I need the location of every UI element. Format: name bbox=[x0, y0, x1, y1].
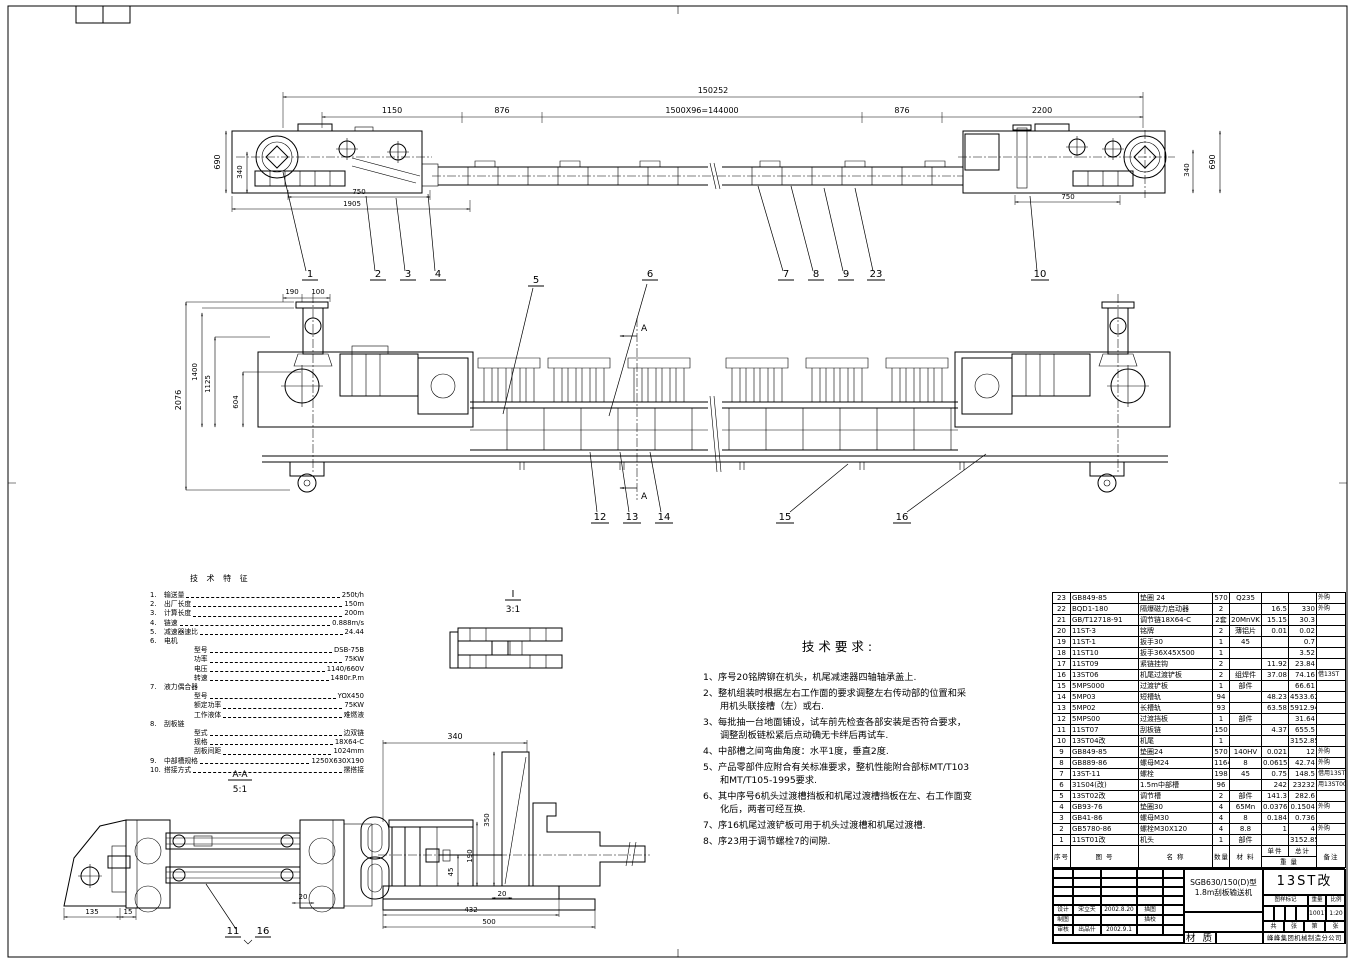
balloon: 16 bbox=[257, 926, 270, 937]
table-cell: 机尾 bbox=[1139, 736, 1213, 747]
section-aa-large: 340 350 190 45 20 432 bbox=[361, 732, 650, 929]
table-cell: 42.74 bbox=[1289, 758, 1317, 769]
empty-cell bbox=[1184, 912, 1263, 932]
table-cell: 66.61 bbox=[1289, 681, 1317, 692]
table-cell: 外购 bbox=[1317, 824, 1346, 835]
table-cell: 部件 bbox=[1230, 681, 1262, 692]
spec-line: 刮板间距1024mm bbox=[150, 747, 364, 756]
tech-requirement-item: 8、序23用于调节螺栓7的间隙. bbox=[703, 835, 975, 849]
dim-label: 1905 bbox=[343, 200, 361, 208]
table-cell: 短槽轨 bbox=[1139, 692, 1213, 703]
table-cell bbox=[1262, 714, 1289, 725]
table-cell: 1164 bbox=[1213, 758, 1230, 769]
table-cell: 31.64 bbox=[1289, 714, 1317, 725]
table-cell: 45 bbox=[1230, 769, 1262, 780]
spec-line: 8.刮板链 bbox=[150, 720, 364, 729]
role-label: 描校 bbox=[1137, 915, 1163, 925]
table-cell: 外购 bbox=[1317, 758, 1346, 769]
table-cell: 15.15 bbox=[1262, 615, 1289, 626]
table-cell: 65Mn bbox=[1230, 802, 1262, 813]
table-cell: 20MnVK bbox=[1230, 615, 1262, 626]
tech-requirements-list: 1、序号20铭牌铆在机头，机尾减速器四轴轴承盖上.2、整机组装时根据左右工作面的… bbox=[703, 671, 975, 848]
tech-requirement-item: 4、中部槽之间弯曲角度：水平1度，垂直2度. bbox=[703, 745, 975, 759]
table-row: 513ST02改调节槽2部件141.3282.6 bbox=[1053, 791, 1346, 802]
table-cell: 7 bbox=[1053, 769, 1071, 780]
dim-label: 1400 bbox=[191, 363, 199, 381]
table-cell bbox=[1230, 736, 1262, 747]
col-header-no: 序号 bbox=[1053, 846, 1071, 868]
table-cell: 过渡铲板 bbox=[1139, 681, 1213, 692]
table-cell: 0.0376 bbox=[1262, 802, 1289, 813]
role-label: 审核 bbox=[1053, 925, 1073, 935]
balloon: 13 bbox=[626, 512, 639, 523]
spec-line: 3.计算长度200m bbox=[150, 609, 364, 618]
table-cell: 16.5 bbox=[1262, 604, 1289, 615]
table-cell: 2 bbox=[1213, 604, 1230, 615]
table-cell bbox=[1317, 813, 1346, 824]
balloon: 6 bbox=[647, 269, 653, 280]
table-cell: 外购 bbox=[1317, 593, 1346, 604]
table-cell: 外购 bbox=[1317, 747, 1346, 758]
table-cell: 5MPS00 bbox=[1071, 714, 1139, 725]
table-cell bbox=[1317, 637, 1346, 648]
spec-line: 规格18X64-C bbox=[150, 738, 364, 747]
table-cell bbox=[1230, 659, 1262, 670]
table-cell bbox=[1230, 703, 1262, 714]
table-cell: BQD1-180 bbox=[1071, 604, 1139, 615]
revision-row bbox=[1053, 887, 1184, 896]
spec-line: 额定功率75KW bbox=[150, 701, 364, 710]
table-cell: 调节链18X64-C bbox=[1139, 615, 1213, 626]
tech-requirement-item: 7、序16机尾过渡铲板可用于机头过渡槽和机尾过渡槽. bbox=[703, 819, 975, 833]
table-cell: 22 bbox=[1053, 604, 1071, 615]
detail-scale: 3:1 bbox=[506, 605, 520, 615]
table-row: 135MP02长槽轨9363.585912.94 bbox=[1053, 703, 1346, 714]
table-cell: 570 bbox=[1213, 593, 1230, 604]
title-block: 设计 宋立天 2002.8.20 描图 制图 描校 审核 出品什 2002.9.… bbox=[1052, 868, 1345, 944]
table-cell: 11.92 bbox=[1262, 659, 1289, 670]
table-cell: 1 bbox=[1262, 824, 1289, 835]
table-cell: 48.23 bbox=[1262, 692, 1289, 703]
section-aa-small: A-A 5:1 135 15 20 bbox=[64, 770, 372, 944]
dim-label: 1125 bbox=[204, 375, 212, 393]
spec-line: 7.液力偶合器 bbox=[150, 683, 364, 692]
role-label: 描图 bbox=[1137, 905, 1163, 915]
balloon: 3 bbox=[405, 269, 411, 280]
table-row: 1111ST07刮板链1504.37655.5 bbox=[1053, 725, 1346, 736]
table-cell bbox=[1317, 714, 1346, 725]
dim-label: 2200 bbox=[1032, 106, 1052, 115]
spec-line: 功率75KW bbox=[150, 655, 364, 664]
balloon: 14 bbox=[658, 512, 671, 523]
table-cell bbox=[1262, 736, 1289, 747]
dim-label: 1150 bbox=[382, 106, 402, 115]
tech-requirement-item: 5、产品零部件应附合有关标准要求，整机性能附合部标MT/T103和MT/T105… bbox=[703, 761, 975, 788]
table-cell: 2 bbox=[1213, 626, 1230, 637]
material-label: 材 质 bbox=[1184, 932, 1216, 944]
table-cell: GB/T12718-91 bbox=[1071, 615, 1139, 626]
table-cell: 17 bbox=[1053, 659, 1071, 670]
sheet-total-unit: 张 bbox=[1284, 921, 1304, 932]
table-cell: 148.5 bbox=[1289, 769, 1317, 780]
table-cell: 5MP02 bbox=[1071, 703, 1139, 714]
table-cell: 74.16 bbox=[1289, 670, 1317, 681]
revision-row bbox=[1053, 935, 1184, 943]
table-cell bbox=[1317, 725, 1346, 736]
table-cell: 0.01 bbox=[1262, 626, 1289, 637]
table-row: 1811ST10扳手36X45X50013.52 bbox=[1053, 648, 1346, 659]
table-cell: 3152.85 bbox=[1289, 835, 1317, 846]
tech-features-title: 技 术 特 征 bbox=[150, 573, 364, 584]
table-cell: 11 bbox=[1053, 725, 1071, 736]
table-cell: 1 bbox=[1213, 714, 1230, 725]
balloon: 8 bbox=[813, 269, 819, 280]
dim-label: 45 bbox=[447, 868, 455, 877]
table-cell: 45 bbox=[1230, 637, 1262, 648]
section-mark-label: A bbox=[641, 492, 648, 502]
table-cell: 5MPS000 bbox=[1071, 681, 1139, 692]
table-row: 23GB849-85垫圈 24570Q235外购 bbox=[1053, 593, 1346, 604]
balloon: 4 bbox=[435, 269, 441, 280]
table-cell: 10 bbox=[1053, 736, 1071, 747]
table-row: 8GB889-86螺母M24116480.061542.74外购 bbox=[1053, 758, 1346, 769]
weight-header: 重量 bbox=[1308, 895, 1326, 906]
spec-line: 5.减速器速比24.44 bbox=[150, 628, 364, 637]
table-row: 3GB41-86螺母M30480.1840.736 bbox=[1053, 813, 1346, 824]
table-row: 111ST01改机头1部件3152.85 bbox=[1053, 835, 1346, 846]
section-scale: 5:1 bbox=[233, 785, 247, 795]
spec-line: 型式边双链 bbox=[150, 729, 364, 738]
table-row: 125MPS00过渡挡板1部件31.64 bbox=[1053, 714, 1346, 725]
material-value-cell bbox=[1216, 932, 1263, 944]
table-cell: 0.184 bbox=[1262, 813, 1289, 824]
table-cell: 1.5m中部槽 bbox=[1139, 780, 1213, 791]
spec-line: 型号YOX450 bbox=[150, 692, 364, 701]
parts-list-and-title-block: 23GB849-85垫圈 24570Q235外购22BQD1-180隔爆磁力启动… bbox=[1052, 592, 1345, 944]
spec-line: 9.中部槽规格1250X630X190 bbox=[150, 757, 364, 766]
table-cell: 4.37 bbox=[1262, 725, 1289, 736]
table-cell: GB41-86 bbox=[1071, 813, 1139, 824]
table-cell bbox=[1230, 604, 1262, 615]
table-cell: GB849-85 bbox=[1071, 747, 1139, 758]
table-cell: 4 bbox=[1213, 813, 1230, 824]
table-row: 21GB/T12718-91调节链18X64-C2套20MnVK15.1530.… bbox=[1053, 615, 1346, 626]
table-cell: 11ST01改 bbox=[1071, 835, 1139, 846]
parts-table-body: 23GB849-85垫圈 24570Q235外购22BQD1-180隔爆磁力启动… bbox=[1053, 593, 1346, 846]
table-cell: 13ST-11 bbox=[1071, 769, 1139, 780]
table-cell: 垫圈30 bbox=[1139, 802, 1213, 813]
table-cell: 63.58 bbox=[1262, 703, 1289, 714]
dim-label: 150252 bbox=[698, 86, 729, 95]
tech-requirement-item: 6、其中序号6机头过渡槽挡板和机尾过渡槽挡板在左、右工作面变化后，两者可经互换. bbox=[703, 790, 975, 817]
table-cell: 0.021 bbox=[1262, 747, 1289, 758]
table-cell: 4 bbox=[1289, 824, 1317, 835]
table-cell: 螺栓M30X120 bbox=[1139, 824, 1213, 835]
spec-line: 转速1480r.P.m bbox=[150, 674, 364, 683]
signature-row-audit: 审核 出品什 2002.9.1 bbox=[1053, 925, 1184, 935]
mark-cell bbox=[1263, 906, 1274, 921]
table-cell: 借13ST bbox=[1317, 670, 1346, 681]
table-cell bbox=[1230, 780, 1262, 791]
table-cell: 31S04(改) bbox=[1071, 780, 1139, 791]
spec-line: 工作液体难燃液 bbox=[150, 711, 364, 720]
dim-label: 340 bbox=[447, 732, 462, 741]
spec-line: 型号DSB-75B bbox=[150, 646, 364, 655]
table-cell: 组焊件 bbox=[1230, 670, 1262, 681]
table-cell: 15 bbox=[1053, 681, 1071, 692]
table-cell: 扳手30 bbox=[1139, 637, 1213, 648]
signature: 宋立天 bbox=[1073, 905, 1101, 915]
balloon: 10 bbox=[1034, 269, 1047, 280]
product-name: 1.8m刮板输送机 bbox=[1185, 888, 1262, 898]
table-cell: GB5780-86 bbox=[1071, 824, 1139, 835]
table-cell: 30.3 bbox=[1289, 615, 1317, 626]
table-cell: 5 bbox=[1053, 791, 1071, 802]
table-row: 631S04(改)1.5m中部槽9624223232用13ST00改 bbox=[1053, 780, 1346, 791]
table-cell: 部件 bbox=[1230, 714, 1262, 725]
dim-label: 750 bbox=[352, 188, 365, 196]
col-header-material: 材 料 bbox=[1230, 846, 1262, 868]
table-cell: 12 bbox=[1289, 747, 1317, 758]
company-name: 峰峰集团机械制造分公司 bbox=[1263, 932, 1346, 944]
table-cell: 11ST10 bbox=[1071, 648, 1139, 659]
signature-row-design: 设计 宋立天 2002.8.20 描图 bbox=[1053, 905, 1184, 915]
dim-label: 690 bbox=[213, 154, 222, 169]
tech-requirement-item: 1、序号20铭牌铆在机头，机尾减速器四轴轴承盖上. bbox=[703, 671, 975, 685]
spec-line: 电压1140/660V bbox=[150, 665, 364, 674]
table-cell: GB889-86 bbox=[1071, 758, 1139, 769]
table-row: 155MPS000过渡铲板1部件66.61 bbox=[1053, 681, 1346, 692]
table-cell bbox=[1262, 637, 1289, 648]
table-cell: 薄铝片 bbox=[1230, 626, 1262, 637]
table-cell: 5MP03 bbox=[1071, 692, 1139, 703]
table-cell: 8.8 bbox=[1230, 824, 1262, 835]
table-row: 4GB93-76垫圈30465Mn0.03760.1504外购 bbox=[1053, 802, 1346, 813]
spec-line: 1.输送量250t/h bbox=[150, 591, 364, 600]
sheet-total-label: 共 bbox=[1263, 921, 1284, 932]
table-cell bbox=[1230, 648, 1262, 659]
mark-cell bbox=[1274, 906, 1285, 921]
table-cell bbox=[1317, 736, 1346, 747]
balloon: 23 bbox=[870, 269, 883, 280]
balloon: 7 bbox=[783, 269, 789, 280]
table-cell: 0.02 bbox=[1289, 626, 1317, 637]
dim-label: 20 bbox=[498, 890, 507, 898]
table-cell: 2套 bbox=[1213, 615, 1230, 626]
weight-value: 10017 bbox=[1308, 906, 1326, 921]
revision-row bbox=[1053, 878, 1184, 887]
table-cell bbox=[1317, 648, 1346, 659]
top-view: 150252 1150 876 1500X96=144000 876 2200 … bbox=[213, 86, 1220, 416]
signature: 出品什 bbox=[1073, 925, 1101, 935]
table-cell: 11ST-1 bbox=[1071, 637, 1139, 648]
balloon: 2 bbox=[375, 269, 381, 280]
table-cell: 3 bbox=[1053, 813, 1071, 824]
table-cell: 2 bbox=[1213, 670, 1230, 681]
table-cell: 1 bbox=[1213, 681, 1230, 692]
table-cell: 14 bbox=[1053, 692, 1071, 703]
tech-requirements-title: 技术要求: bbox=[703, 636, 975, 655]
table-cell bbox=[1317, 703, 1346, 714]
table-cell bbox=[1317, 626, 1346, 637]
table-cell: 198 bbox=[1213, 769, 1230, 780]
table-cell: 0.1504 bbox=[1289, 802, 1317, 813]
table-cell: 3.52 bbox=[1289, 648, 1317, 659]
table-cell: 调节槽 bbox=[1139, 791, 1213, 802]
dim-label: 15 bbox=[124, 908, 133, 916]
table-cell: 655.5 bbox=[1289, 725, 1317, 736]
col-header-unit-weight: 单件 bbox=[1262, 846, 1289, 857]
table-cell: Q235 bbox=[1230, 593, 1262, 604]
table-cell: 1 bbox=[1213, 736, 1230, 747]
sheet-number-unit: 张 bbox=[1325, 921, 1346, 932]
table-cell: 4 bbox=[1053, 802, 1071, 813]
table-cell: 4533.62 bbox=[1289, 692, 1317, 703]
table-cell: 螺栓 bbox=[1139, 769, 1213, 780]
table-cell bbox=[1317, 659, 1346, 670]
balloon: 12 bbox=[594, 512, 607, 523]
table-cell: 242 bbox=[1262, 780, 1289, 791]
table-cell: 330 bbox=[1289, 604, 1317, 615]
table-cell: 150 bbox=[1213, 725, 1230, 736]
table-cell: 2 bbox=[1213, 659, 1230, 670]
table-cell: 8 bbox=[1230, 758, 1262, 769]
col-header-code: 图 号 bbox=[1071, 846, 1139, 868]
table-cell: 21 bbox=[1053, 615, 1071, 626]
section-mark-label: A bbox=[641, 324, 648, 334]
table-cell: 96 bbox=[1213, 780, 1230, 791]
role-label: 设计 bbox=[1053, 905, 1073, 915]
dim-label: 135 bbox=[85, 908, 98, 916]
table-cell bbox=[1262, 648, 1289, 659]
dim-label: 604 bbox=[232, 395, 240, 409]
tech-requirements-panel: 技术要求: 1、序号20铭牌铆在机头，机尾减速器四轴轴承盖上.2、整机组装时根据… bbox=[703, 636, 975, 850]
table-cell: 12 bbox=[1053, 714, 1071, 725]
table-row: 1711ST09紧链挂钩211.9223.84 bbox=[1053, 659, 1346, 670]
table-cell: 1 bbox=[1213, 835, 1230, 846]
table-cell: 4 bbox=[1213, 802, 1230, 813]
table-cell: 8 bbox=[1230, 813, 1262, 824]
table-cell bbox=[1262, 681, 1289, 692]
table-cell: 23 bbox=[1053, 593, 1071, 604]
table-cell: 用13ST00改 bbox=[1317, 780, 1346, 791]
table-cell: 扳手36X45X500 bbox=[1139, 648, 1213, 659]
drawing-number: 13ST改 bbox=[1263, 869, 1346, 895]
dim-label: 340 bbox=[1183, 163, 1191, 176]
col-header-remark: 备注 bbox=[1317, 846, 1346, 868]
scale-value: 1:20 bbox=[1326, 906, 1346, 921]
balloon: 11 bbox=[227, 926, 240, 937]
signature-row-draft: 制图 描校 bbox=[1053, 915, 1184, 925]
table-cell: 282.6 bbox=[1289, 791, 1317, 802]
table-cell: 94 bbox=[1213, 692, 1230, 703]
table-cell: 9 bbox=[1053, 747, 1071, 758]
col-header-total-weight: 总计 bbox=[1289, 846, 1317, 857]
table-cell: 13 bbox=[1053, 703, 1071, 714]
table-cell: GB93-76 bbox=[1071, 802, 1139, 813]
dim-label: 190 bbox=[285, 288, 298, 296]
middle-view: A A 2076 1400 1125 604 190 100 12 13 14 … bbox=[174, 288, 1170, 523]
table-cell: 3152.85 bbox=[1289, 736, 1317, 747]
table-cell: 5912.94 bbox=[1289, 703, 1317, 714]
tech-features-list: 1.输送量250t/h2.出厂长度150m3.计算长度200m4.链速0.888… bbox=[150, 591, 364, 775]
table-cell: 1 bbox=[1053, 835, 1071, 846]
drawing-sheet: 150252 1150 876 1500X96=144000 876 2200 … bbox=[0, 0, 1356, 966]
dim-label: 100 bbox=[311, 288, 324, 296]
date: 2002.8.20 bbox=[1101, 905, 1137, 915]
table-cell bbox=[1289, 593, 1317, 604]
dim-label: 340 bbox=[236, 165, 244, 178]
scale-header: 比例 bbox=[1326, 895, 1346, 906]
table-cell bbox=[1317, 681, 1346, 692]
table-cell: 0.736 bbox=[1289, 813, 1317, 824]
table-cell: 16 bbox=[1053, 670, 1071, 681]
table-cell: 部件 bbox=[1230, 835, 1262, 846]
table-cell: 11ST-3 bbox=[1071, 626, 1139, 637]
table-cell: 8 bbox=[1053, 758, 1071, 769]
table-row: 1013ST04改机尾13152.85 bbox=[1053, 736, 1346, 747]
table-cell: 外购 bbox=[1317, 604, 1346, 615]
dim-label: 1500X96=144000 bbox=[665, 106, 738, 115]
dim-label: 690 bbox=[1208, 154, 1217, 169]
table-cell: 机尾过渡铲板 bbox=[1139, 670, 1213, 681]
table-cell: 23.84 bbox=[1289, 659, 1317, 670]
balloon: 1 bbox=[307, 269, 313, 280]
table-row: 9GB849-85垫圈24570140HV0.02112外购 bbox=[1053, 747, 1346, 758]
table-cell: 部件 bbox=[1230, 791, 1262, 802]
table-cell: 1 bbox=[1213, 637, 1230, 648]
balloon: 15 bbox=[779, 512, 792, 523]
dim-label: 876 bbox=[494, 106, 509, 115]
table-row: 1911ST-1扳手301450.7 bbox=[1053, 637, 1346, 648]
table-cell bbox=[1262, 593, 1289, 604]
col-header-qty: 数量 bbox=[1213, 846, 1230, 868]
table-cell bbox=[1317, 835, 1346, 846]
date: 2002.9.1 bbox=[1101, 925, 1137, 935]
table-cell: 19 bbox=[1053, 637, 1071, 648]
product-name-cell: SGB630/150(D)型 1.8m刮板输送机 bbox=[1184, 869, 1263, 912]
dim-label: 750 bbox=[1061, 193, 1074, 201]
table-cell: 140HV bbox=[1230, 747, 1262, 758]
parts-table: 23GB849-85垫圈 24570Q235外购22BQD1-180隔爆磁力启动… bbox=[1052, 592, 1346, 868]
table-cell: 机头 bbox=[1139, 835, 1213, 846]
table-cell: 螺母M30 bbox=[1139, 813, 1213, 824]
table-cell: GB849-85 bbox=[1071, 593, 1139, 604]
table-cell: 141.3 bbox=[1262, 791, 1289, 802]
dim-label: 350 bbox=[483, 813, 491, 826]
table-cell: 11ST07 bbox=[1071, 725, 1139, 736]
spec-line: 6.电机 bbox=[150, 637, 364, 646]
tech-requirement-item: 2、整机组装时根据左右工作面的要求调整左右传动部的位置和采用机头联接槽（左）或右… bbox=[703, 687, 975, 714]
dim-label: 500 bbox=[482, 918, 495, 926]
table-cell bbox=[1262, 835, 1289, 846]
table-cell: 铭牌 bbox=[1139, 626, 1213, 637]
table-cell: 4 bbox=[1213, 824, 1230, 835]
detail-title: I bbox=[512, 589, 515, 600]
mark-header: 图样标记 bbox=[1263, 895, 1308, 906]
spec-line: 4.链速0.888m/s bbox=[150, 619, 364, 628]
table-row: 145MP03短槽轨9448.234533.62 bbox=[1053, 692, 1346, 703]
table-cell: 长槽轨 bbox=[1139, 703, 1213, 714]
revision-row bbox=[1053, 869, 1184, 878]
table-cell: 过渡挡板 bbox=[1139, 714, 1213, 725]
col-header-weight: 重 量 bbox=[1262, 857, 1317, 868]
tech-requirement-item: 3、每批抽一台地面铺设，试车前先检查各部安装是否符合要求，调整刮板链松紧后点动确… bbox=[703, 716, 975, 743]
spec-line: 10.搭接方式摞搭接 bbox=[150, 766, 364, 775]
balloon: 5 bbox=[533, 275, 539, 286]
detail-i: I 3:1 bbox=[450, 589, 562, 668]
table-cell: 刮板链 bbox=[1139, 725, 1213, 736]
